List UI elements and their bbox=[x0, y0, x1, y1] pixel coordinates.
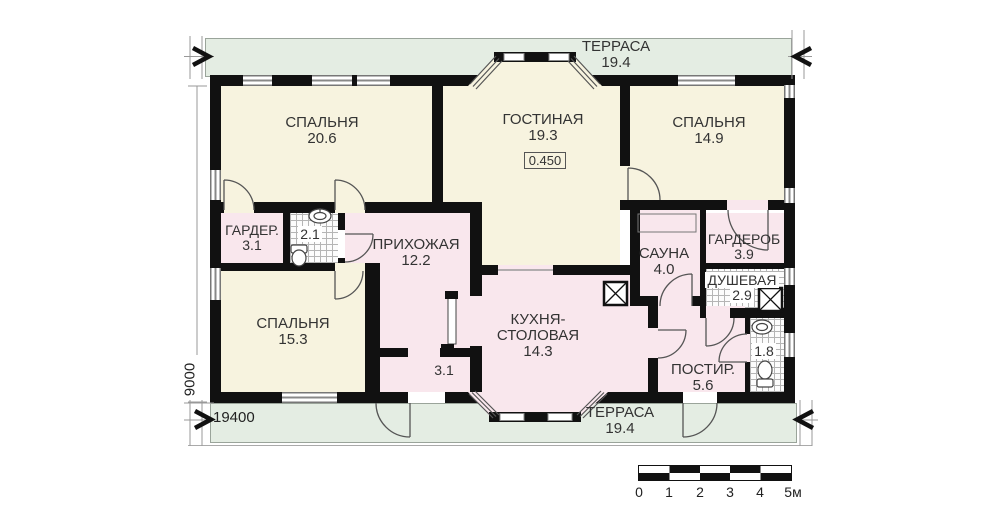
door-gap-kitchen-laundry bbox=[648, 328, 658, 358]
bedroom1-area: 20.6 bbox=[252, 131, 392, 147]
label-shower: ДУШЕВАЯ 2.9 bbox=[702, 273, 782, 303]
label-bedroom1: СПАЛЬНЯ 20.6 bbox=[252, 115, 392, 147]
kitchen-name-line1: КУХНЯ- bbox=[468, 312, 608, 328]
door-gap-bath bbox=[338, 230, 345, 258]
room-living-lower bbox=[482, 203, 620, 266]
wall-bedroom1-living bbox=[432, 86, 443, 213]
wall-bedroom2-bottom bbox=[620, 200, 795, 210]
window-bedroom2-right-b bbox=[784, 188, 795, 203]
bedroom3-name: СПАЛЬНЯ bbox=[223, 316, 363, 332]
room-bedroom1 bbox=[221, 86, 432, 213]
bedroom1-name: СПАЛЬНЯ bbox=[252, 115, 392, 131]
wardrobe1-area: 3.1 bbox=[222, 238, 282, 253]
label-terrace-bottom: ТЕРРАСА 19.4 bbox=[550, 405, 690, 437]
label-bedroom2: СПАЛЬНЯ 14.9 bbox=[639, 115, 779, 147]
terrace-top bbox=[205, 38, 792, 77]
terrace-bottom-edge-line bbox=[188, 445, 812, 446]
label-tambour: 3.1 bbox=[430, 363, 458, 378]
door-gap-tambour bbox=[408, 348, 440, 357]
scale-bar bbox=[638, 465, 792, 481]
dimension-height: 9000 bbox=[182, 358, 199, 402]
wall-wardrobe1-bath bbox=[283, 213, 290, 263]
scale-label-2: 2 bbox=[685, 484, 715, 500]
label-laundry: ПОСТИР. 5.6 bbox=[663, 362, 743, 394]
window-bedroom1-left bbox=[210, 170, 221, 200]
bedroom3-area: 15.3 bbox=[223, 332, 363, 348]
hall-name: ПРИХОЖАЯ bbox=[346, 237, 486, 253]
scale-label-3: 3 bbox=[715, 484, 745, 500]
label-bedroom3: СПАЛЬНЯ 15.3 bbox=[223, 316, 363, 348]
wall-outer-left bbox=[210, 75, 221, 403]
arrow-left-icon bbox=[795, 48, 811, 65]
bedroom2-name: СПАЛЬНЯ bbox=[639, 115, 779, 131]
wall-living-kitchen-right bbox=[553, 265, 640, 275]
scale-label-1: 1 bbox=[654, 484, 684, 500]
door-gap-bedroom2 bbox=[620, 166, 630, 200]
label-wc: 1.8 bbox=[750, 344, 778, 359]
door-gap-bedroom1-a bbox=[224, 202, 254, 213]
arrow-left-icon bbox=[797, 411, 813, 428]
tambour-area: 3.1 bbox=[434, 362, 453, 378]
floor-level-mark: 0.450 bbox=[524, 152, 566, 169]
window-bedroom1-a bbox=[243, 75, 272, 86]
terrace-bottom-area: 19.4 bbox=[550, 421, 690, 437]
wc-area: 1.8 bbox=[752, 343, 775, 359]
door-gap-bedroom1-b bbox=[335, 202, 365, 213]
terrace-bottom bbox=[210, 403, 797, 443]
window-bedroom1-c bbox=[357, 75, 390, 86]
sauna-area: 4.0 bbox=[634, 262, 694, 278]
terrace-top-area: 19.4 bbox=[546, 55, 686, 71]
laundry-name: ПОСТИР. bbox=[663, 362, 743, 378]
floor-plan: ТЕРРАСА 19.4 СПАЛЬНЯ 20.6 ГОСТИНАЯ 19.3 … bbox=[0, 0, 1000, 530]
bath-area: 2.1 bbox=[298, 226, 321, 242]
wall-wardrobe2-shower bbox=[706, 263, 784, 269]
room-living bbox=[443, 86, 620, 203]
scale-bar-row-bottom bbox=[639, 473, 791, 480]
arrow-right-icon bbox=[195, 411, 211, 428]
label-terrace-top: ТЕРРАСА 19.4 bbox=[546, 39, 686, 71]
living-name: ГОСТИНАЯ bbox=[473, 112, 613, 128]
label-bath: 2.1 bbox=[296, 227, 324, 242]
window-bedroom3-left bbox=[210, 268, 221, 300]
scale-label-4: 4 bbox=[745, 484, 775, 500]
label-sauna: САУНА 4.0 bbox=[634, 246, 694, 278]
sauna-name: САУНА bbox=[634, 246, 694, 262]
door-gap-sauna bbox=[658, 296, 692, 306]
terrace-top-name: ТЕРРАСА bbox=[546, 39, 686, 55]
window-bedroom2-top bbox=[678, 75, 735, 86]
shower-name: ДУШЕВАЯ bbox=[705, 272, 778, 288]
label-living: ГОСТИНАЯ 19.3 bbox=[473, 112, 613, 144]
window-bedroom1-b bbox=[312, 75, 352, 86]
door-gap-wardrobe2 bbox=[727, 200, 768, 210]
window-bedroom3-bottom bbox=[282, 392, 337, 403]
kitchen-area: 14.3 bbox=[468, 344, 608, 360]
scale-label-5: 5м bbox=[778, 484, 808, 500]
dimension-width: 19400 bbox=[213, 409, 255, 426]
kitchen-name-line2: СТОЛОВАЯ bbox=[468, 328, 608, 344]
label-kitchen: КУХНЯ- СТОЛОВАЯ 14.3 bbox=[468, 312, 608, 360]
living-area: 19.3 bbox=[473, 128, 613, 144]
wardrobe2-area: 3.9 bbox=[704, 247, 784, 262]
terrace-bottom-name: ТЕРРАСА bbox=[550, 405, 690, 421]
label-wardrobe2: ГАРДЕРОБ 3.9 bbox=[704, 232, 784, 262]
wardrobe1-name: ГАРДЕР. bbox=[222, 223, 282, 238]
door-gap-terrace-tambour bbox=[408, 392, 445, 403]
window-shower-right bbox=[784, 268, 795, 285]
wardrobe2-name: ГАРДЕРОБ bbox=[704, 232, 784, 247]
scale-bar-row-top bbox=[639, 466, 791, 473]
label-hall: ПРИХОЖАЯ 12.2 bbox=[346, 237, 486, 269]
wall-bedroom3-right bbox=[365, 263, 380, 403]
bedroom2-area: 14.9 bbox=[639, 131, 779, 147]
shower-area: 2.9 bbox=[730, 287, 753, 303]
hall-area: 12.2 bbox=[346, 253, 486, 269]
window-wc-right bbox=[784, 333, 795, 357]
scale-label-0: 0 bbox=[624, 484, 654, 500]
laundry-area: 5.6 bbox=[663, 378, 743, 394]
door-gap-shower-laundry bbox=[706, 308, 730, 318]
window-bedroom2-right-a bbox=[784, 85, 795, 98]
label-wardrobe1: ГАРДЕР. 3.1 bbox=[222, 223, 282, 253]
